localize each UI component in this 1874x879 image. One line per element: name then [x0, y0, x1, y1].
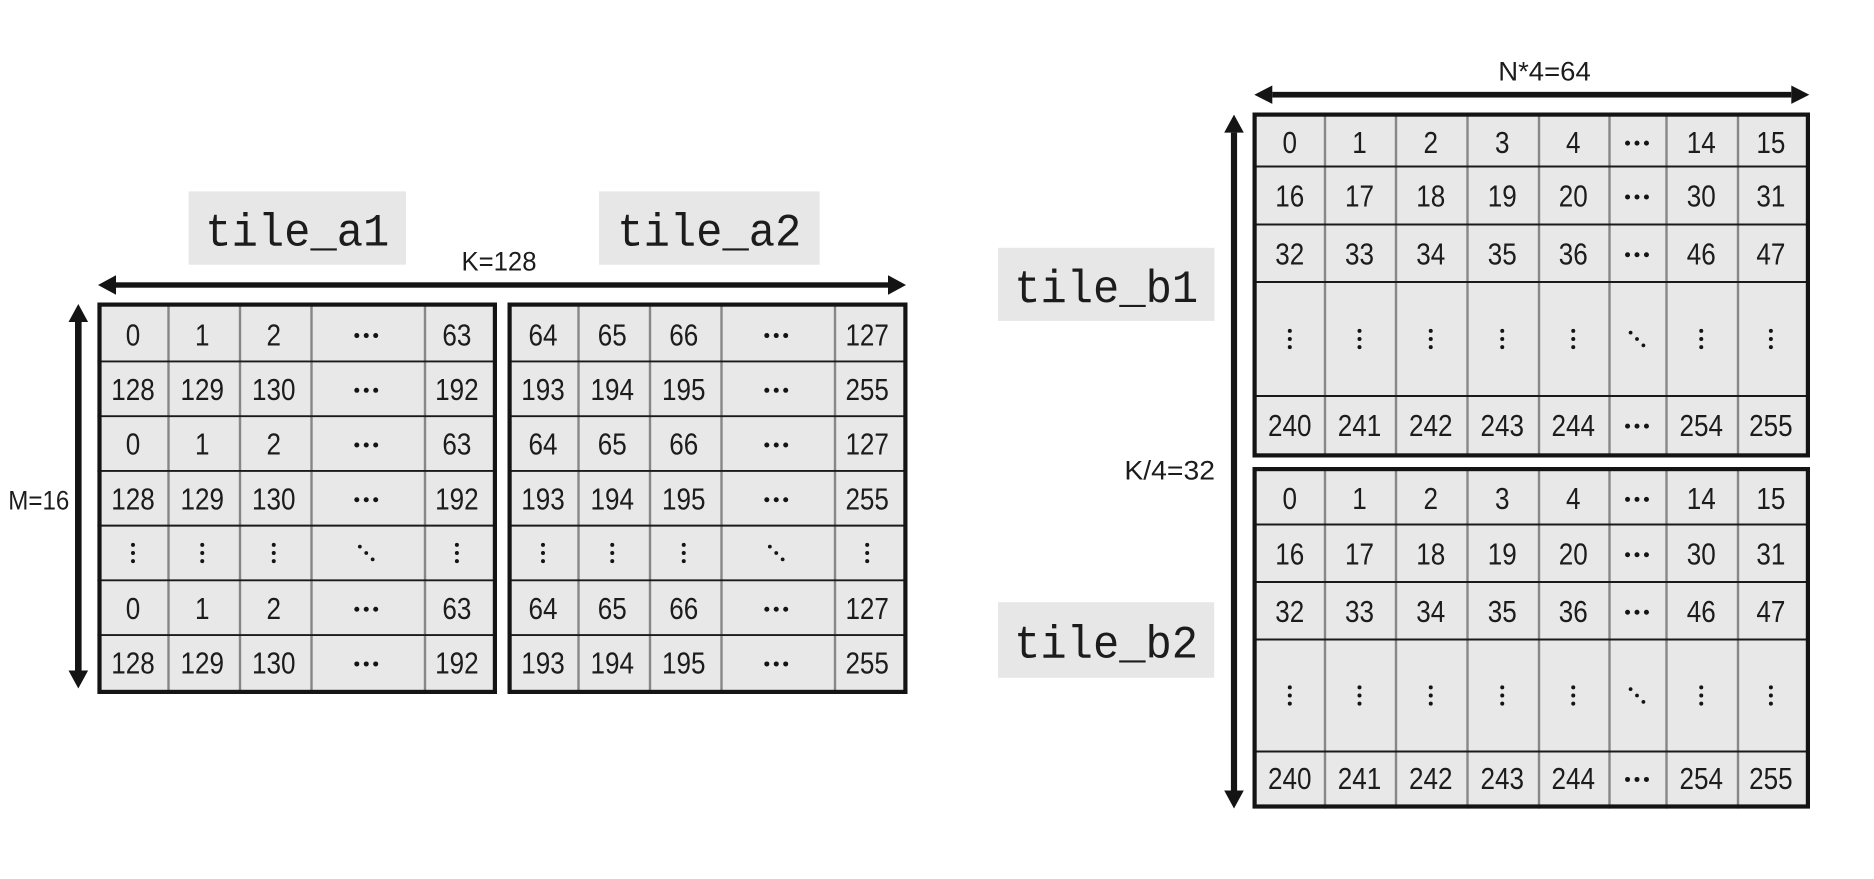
svg-text:19: 19 [1488, 179, 1517, 214]
svg-text:65: 65 [598, 591, 627, 626]
svg-text:193: 193 [521, 646, 565, 681]
svg-text:18: 18 [1416, 179, 1445, 214]
svg-text:241: 241 [1338, 408, 1382, 443]
svg-text:46: 46 [1687, 594, 1716, 629]
svg-text:30: 30 [1687, 536, 1716, 571]
svg-text:64: 64 [529, 317, 558, 352]
svg-text:243: 243 [1481, 408, 1525, 443]
svg-text:4: 4 [1566, 481, 1581, 516]
svg-text:0: 0 [126, 427, 141, 462]
svg-text:255: 255 [845, 481, 889, 516]
svg-text:K/4=32: K/4=32 [1124, 455, 1215, 485]
svg-text:tile_b1: tile_b1 [1014, 264, 1198, 316]
svg-text:66: 66 [669, 591, 698, 626]
svg-text:242: 242 [1409, 761, 1453, 796]
svg-text:195: 195 [662, 646, 706, 681]
svg-text:3: 3 [1495, 125, 1510, 160]
svg-text:64: 64 [529, 427, 558, 462]
svg-text:194: 194 [591, 646, 635, 681]
svg-text:130: 130 [252, 646, 296, 681]
svg-text:194: 194 [591, 481, 635, 516]
svg-text:tile_a2: tile_a2 [617, 208, 801, 260]
svg-text:33: 33 [1345, 594, 1374, 629]
svg-text:240: 240 [1268, 761, 1312, 796]
svg-text:242: 242 [1409, 408, 1453, 443]
svg-text:35: 35 [1488, 236, 1517, 271]
svg-text:1: 1 [1352, 125, 1367, 160]
svg-text:240: 240 [1268, 408, 1312, 443]
svg-text:17: 17 [1345, 179, 1374, 214]
svg-text:18: 18 [1416, 536, 1445, 571]
svg-text:127: 127 [845, 317, 889, 352]
svg-text:16: 16 [1275, 179, 1304, 214]
svg-text:1: 1 [1352, 481, 1367, 516]
svg-text:N*4=64: N*4=64 [1498, 56, 1591, 86]
svg-text:15: 15 [1756, 481, 1785, 516]
svg-text:244: 244 [1552, 761, 1596, 796]
svg-text:M=16: M=16 [8, 486, 69, 516]
svg-text:2: 2 [267, 427, 282, 462]
svg-text:17: 17 [1345, 536, 1374, 571]
svg-text:32: 32 [1275, 236, 1304, 271]
svg-text:33: 33 [1345, 236, 1374, 271]
svg-text:14: 14 [1687, 125, 1716, 160]
svg-text:255: 255 [845, 372, 889, 407]
svg-text:31: 31 [1756, 536, 1785, 571]
svg-text:3: 3 [1495, 481, 1510, 516]
svg-text:192: 192 [435, 646, 479, 681]
svg-text:130: 130 [252, 481, 296, 516]
svg-text:1: 1 [195, 591, 210, 626]
svg-text:34: 34 [1416, 236, 1445, 271]
svg-text:192: 192 [435, 372, 479, 407]
svg-text:K=128: K=128 [462, 246, 537, 276]
svg-text:254: 254 [1680, 408, 1724, 443]
svg-text:130: 130 [252, 372, 296, 407]
svg-text:0: 0 [126, 591, 141, 626]
svg-text:66: 66 [669, 317, 698, 352]
svg-text:128: 128 [111, 372, 155, 407]
svg-text:66: 66 [669, 427, 698, 462]
svg-text:47: 47 [1756, 594, 1785, 629]
svg-text:65: 65 [598, 317, 627, 352]
svg-text:193: 193 [521, 372, 565, 407]
svg-text:31: 31 [1756, 179, 1785, 214]
svg-text:2: 2 [1424, 481, 1439, 516]
svg-text:0: 0 [1283, 481, 1298, 516]
svg-text:255: 255 [1749, 761, 1793, 796]
svg-text:20: 20 [1559, 536, 1588, 571]
svg-text:65: 65 [598, 427, 627, 462]
svg-text:0: 0 [126, 317, 141, 352]
svg-text:195: 195 [662, 481, 706, 516]
svg-text:127: 127 [845, 591, 889, 626]
svg-text:2: 2 [1424, 125, 1439, 160]
svg-text:tile_a1: tile_a1 [205, 208, 389, 260]
svg-text:241: 241 [1338, 761, 1382, 796]
svg-text:128: 128 [111, 646, 155, 681]
svg-text:129: 129 [181, 646, 225, 681]
svg-text:4: 4 [1566, 125, 1581, 160]
svg-text:129: 129 [181, 372, 225, 407]
svg-text:46: 46 [1687, 236, 1716, 271]
svg-text:2: 2 [267, 591, 282, 626]
svg-text:2: 2 [267, 317, 282, 352]
svg-text:20: 20 [1559, 179, 1588, 214]
svg-text:244: 244 [1552, 408, 1596, 443]
svg-text:0: 0 [1283, 125, 1298, 160]
svg-text:19: 19 [1488, 536, 1517, 571]
svg-text:36: 36 [1559, 594, 1588, 629]
svg-text:127: 127 [845, 427, 889, 462]
svg-text:64: 64 [529, 591, 558, 626]
svg-text:34: 34 [1416, 594, 1445, 629]
svg-text:129: 129 [181, 481, 225, 516]
svg-text:47: 47 [1756, 236, 1785, 271]
svg-text:195: 195 [662, 372, 706, 407]
svg-text:63: 63 [442, 427, 471, 462]
svg-text:1: 1 [195, 427, 210, 462]
svg-text:194: 194 [591, 372, 635, 407]
svg-text:36: 36 [1559, 236, 1588, 271]
svg-text:14: 14 [1687, 481, 1716, 516]
svg-text:32: 32 [1275, 594, 1304, 629]
svg-text:192: 192 [435, 481, 479, 516]
svg-text:193: 193 [521, 481, 565, 516]
svg-text:128: 128 [111, 481, 155, 516]
svg-text:63: 63 [442, 591, 471, 626]
svg-text:15: 15 [1756, 125, 1785, 160]
svg-text:16: 16 [1275, 536, 1304, 571]
svg-text:254: 254 [1680, 761, 1724, 796]
svg-text:255: 255 [845, 646, 889, 681]
svg-text:63: 63 [442, 317, 471, 352]
svg-text:255: 255 [1749, 408, 1793, 443]
svg-text:35: 35 [1488, 594, 1517, 629]
svg-text:1: 1 [195, 317, 210, 352]
svg-text:30: 30 [1687, 179, 1716, 214]
svg-text:tile_b2: tile_b2 [1014, 620, 1198, 672]
svg-text:243: 243 [1481, 761, 1525, 796]
